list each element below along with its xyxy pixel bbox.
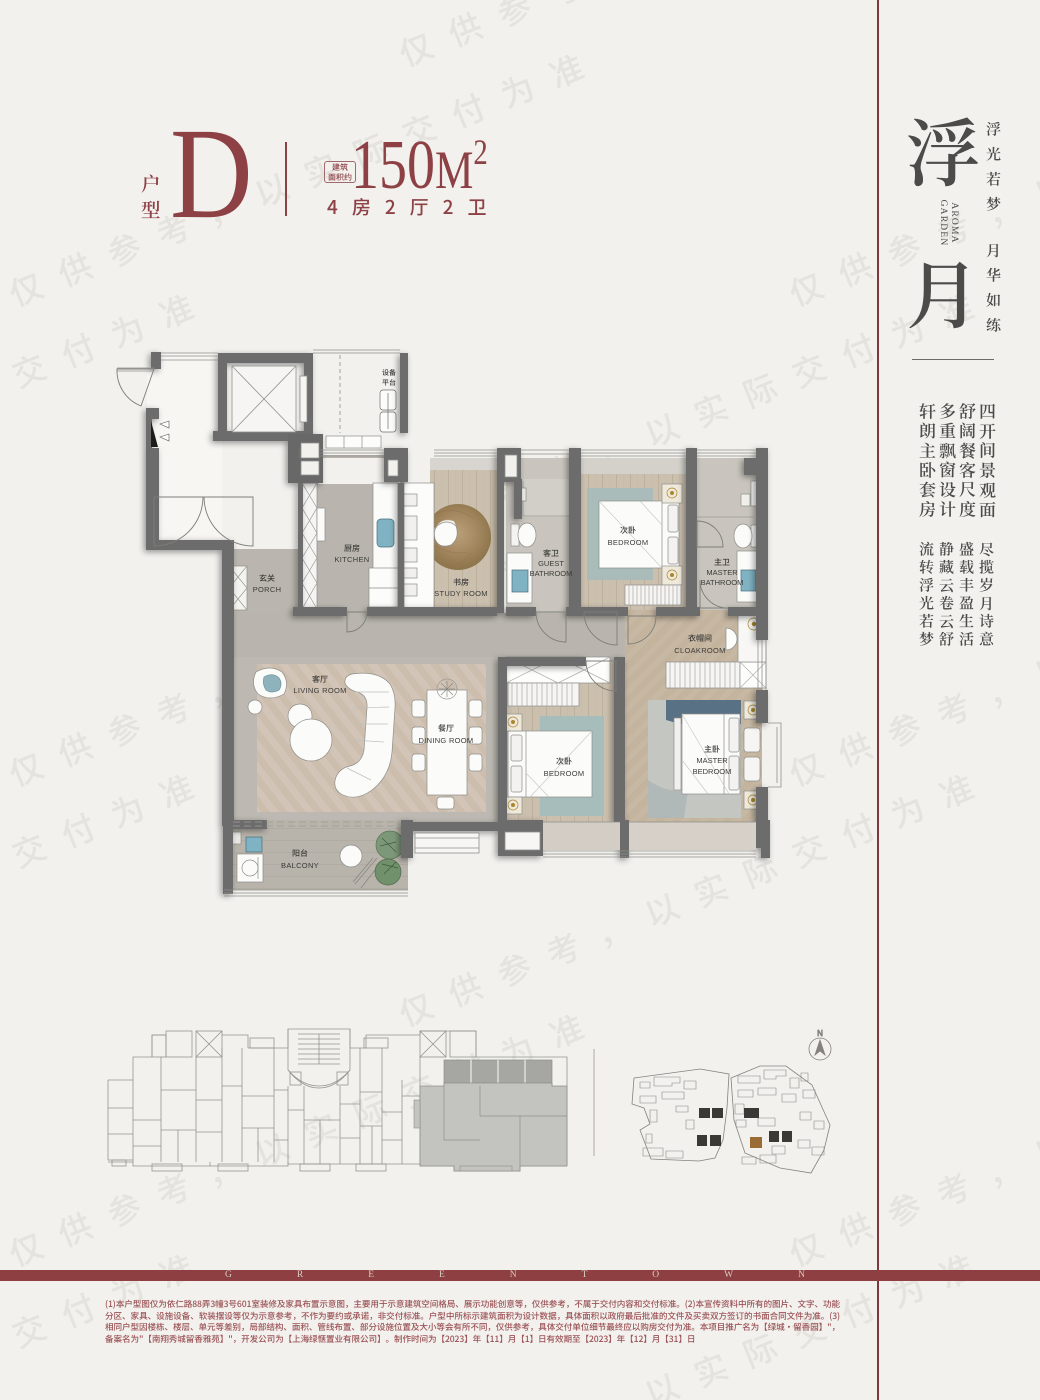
svg-text:N: N (817, 1029, 823, 1038)
svg-text:DINING ROOM: DINING ROOM (419, 735, 474, 746)
svg-text:玄关: 玄关 (259, 573, 275, 584)
svg-text:厨房: 厨房 (344, 543, 360, 554)
svg-text:BALCONY: BALCONY (281, 860, 319, 871)
svg-text:BEDROOM: BEDROOM (693, 766, 732, 777)
svg-text:BATHROOM: BATHROOM (701, 577, 744, 588)
svg-text:衣帽间: 衣帽间 (688, 633, 712, 644)
svg-text:平台: 平台 (382, 378, 396, 388)
svg-text:STUDY ROOM: STUDY ROOM (434, 588, 488, 599)
svg-text:PORCH: PORCH (253, 584, 282, 595)
svg-text:次卧: 次卧 (620, 525, 636, 536)
svg-text:设备: 设备 (382, 368, 396, 378)
svg-text:次卧: 次卧 (556, 756, 572, 767)
svg-text:KITCHEN: KITCHEN (334, 554, 369, 565)
svg-text:CLOAKROOM: CLOAKROOM (674, 645, 725, 656)
svg-text:BEDROOM: BEDROOM (608, 537, 649, 548)
svg-text:客厅: 客厅 (312, 674, 328, 685)
svg-text:主卧: 主卧 (704, 744, 720, 755)
svg-text:MASTER: MASTER (696, 755, 728, 766)
svg-text:餐厅: 餐厅 (438, 723, 454, 734)
svg-text:LIVING ROOM: LIVING ROOM (293, 685, 346, 696)
svg-text:阳台: 阳台 (292, 848, 308, 859)
svg-text:书房: 书房 (453, 577, 469, 588)
svg-text:BEDROOM: BEDROOM (544, 768, 585, 779)
svg-text:BATHROOM: BATHROOM (530, 568, 573, 579)
